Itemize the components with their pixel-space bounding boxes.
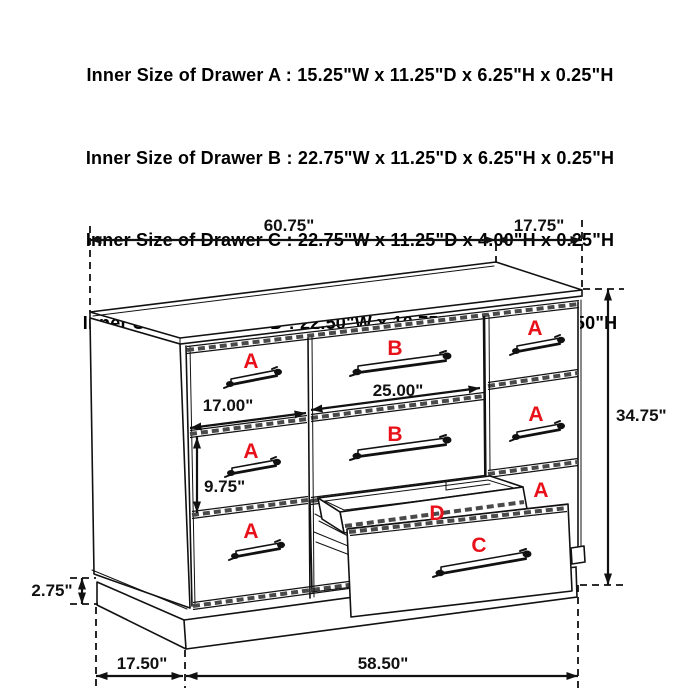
label-a-mid-right: A [528,403,543,426]
dim-left-drawer-width: 17.00" [203,396,254,415]
label-c-open: C [471,534,486,557]
label-b-mid: B [387,423,402,446]
dim-side-depth: 17.75" [514,216,565,235]
dim-top-width: 60.75" [264,216,315,235]
cabinet-left-side-panel [90,318,190,609]
dresser-spec-sheet: Inner Size of Drawer A : 15.25"W x 11.25… [0,0,700,700]
dim-bottom-depth: 17.50" [117,654,168,673]
label-a-top-right: A [527,317,542,340]
label-a-top-left: A [243,350,258,373]
label-a-third-right: A [533,479,548,502]
label-b-top: B [387,337,402,360]
label-a-bottom-left: A [243,520,258,543]
dim-total-height: 34.75" [616,406,667,425]
dim-center-drawer-width: 25.00" [373,381,424,400]
label-d-open: D [429,502,444,525]
height-dimension: 34.75" [580,289,667,585]
plinth-dimension: 2.75" [31,578,98,604]
dim-left-drawer-height: 9.75" [204,477,245,496]
dim-plinth-height: 2.75" [31,581,72,600]
right-foot [571,546,585,564]
label-a-mid-left: A [243,440,258,463]
dresser-dimension-diagram: A A A B B A A A D C 60.75" 17.75" 34.75" [0,0,700,700]
dim-bottom-width: 58.50" [358,654,409,673]
